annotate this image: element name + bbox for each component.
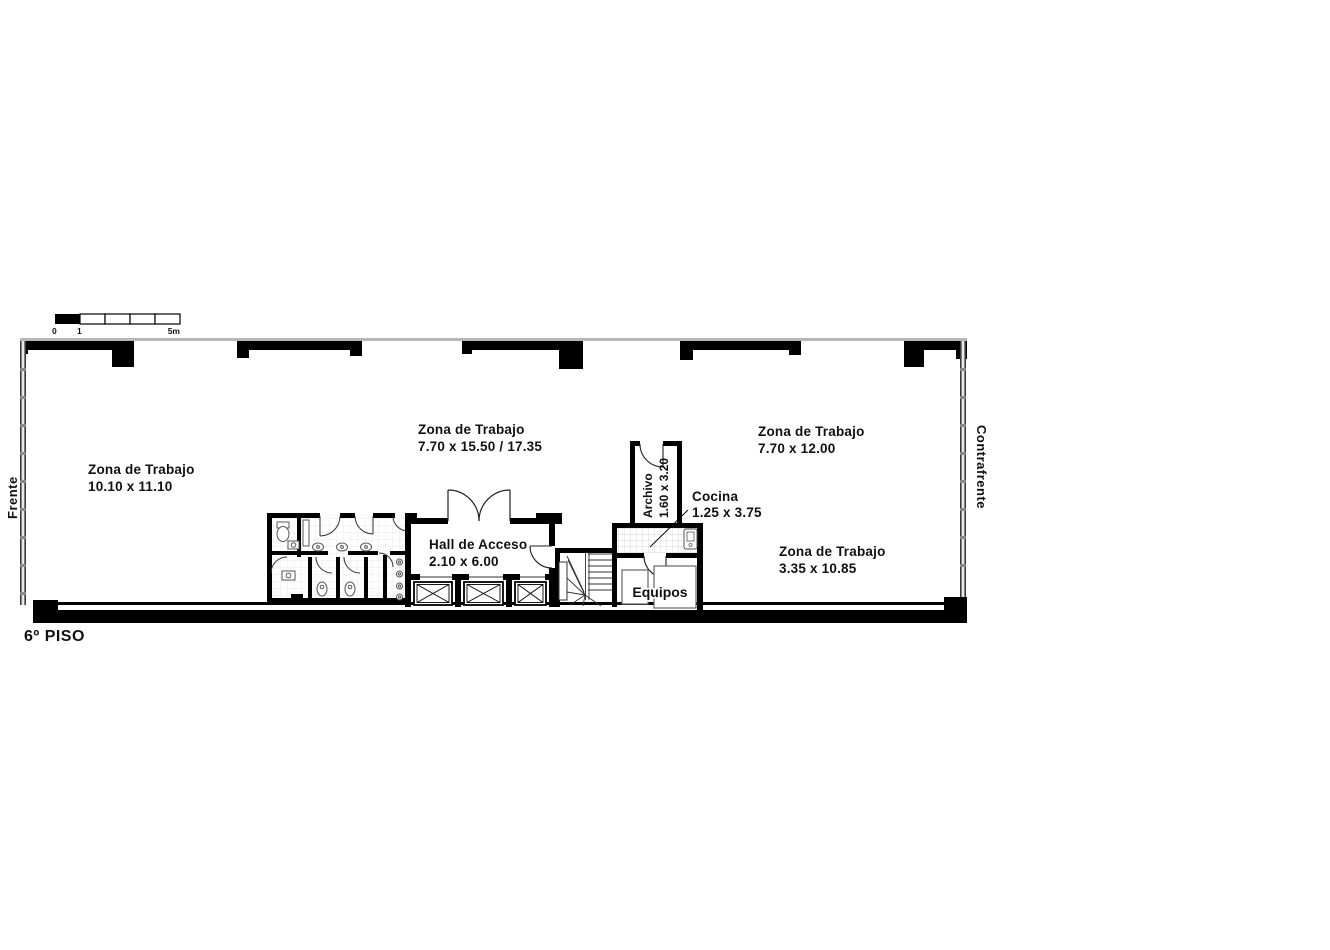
bathroom-core	[267, 513, 411, 604]
floor-plan-page: 0 1 5m	[0, 0, 1330, 950]
hall-dims: 2.10 x 6.00	[429, 554, 499, 569]
zona2-dims: 7.70 x 15.50 / 17.35	[418, 439, 542, 454]
archive-room	[630, 441, 682, 528]
equipos-name: Equipos	[632, 584, 687, 600]
kitchen-sink	[684, 529, 697, 549]
zona3-name: Zona de Trabajo	[758, 424, 865, 439]
back-side-label: Contrafrente	[974, 425, 989, 509]
zona3-dims: 7.70 x 12.00	[758, 441, 835, 456]
zona1-name: Zona de Trabajo	[88, 462, 195, 477]
floor-title: 6º PISO	[24, 628, 85, 645]
cocina-name: Cocina	[692, 489, 739, 504]
zona2-name: Zona de Trabajo	[418, 422, 525, 437]
zona4-dims: 3.35 x 10.85	[779, 561, 857, 576]
scale-bar: 0 1 5m	[52, 314, 180, 336]
staircase	[555, 548, 617, 607]
scale-tick-1: 1	[77, 326, 82, 336]
hall-name: Hall de Acceso	[429, 537, 527, 552]
cocina-dims: 1.25 x 3.75	[692, 505, 762, 520]
entrance-double-door	[448, 490, 510, 521]
hall-side-door	[530, 546, 552, 568]
zona1-dims: 10.10 x 11.10	[88, 479, 172, 494]
archivo-dims: 1.60 x 3.20	[657, 458, 671, 518]
elevators	[405, 580, 555, 607]
scale-tick-5m: 5m	[168, 326, 181, 336]
scale-tick-0: 0	[52, 326, 57, 336]
front-side-label: Frente	[5, 476, 20, 519]
right-window-wall	[960, 341, 966, 599]
left-window-wall	[20, 341, 26, 605]
archivo-name: Archivo	[641, 473, 655, 518]
floor-plan-drawing: 0 1 5m	[0, 0, 1330, 950]
zona4-name: Zona de Trabajo	[779, 544, 886, 559]
